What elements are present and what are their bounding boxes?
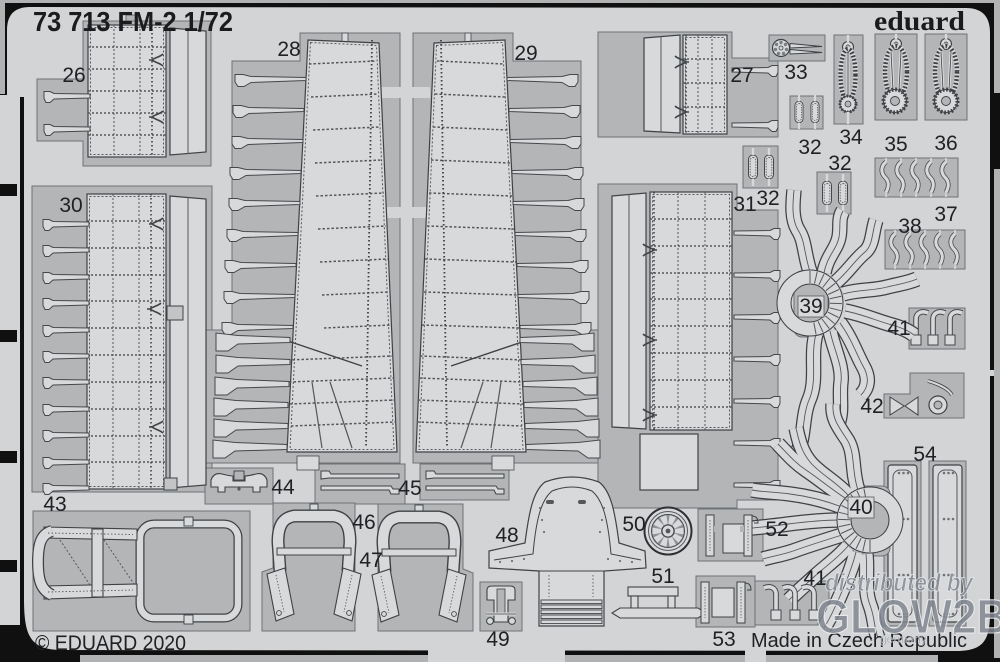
svg-text:34: 34 xyxy=(839,126,863,149)
svg-text:52: 52 xyxy=(765,518,788,541)
svg-text:germany: germany xyxy=(880,632,927,646)
svg-text:54: 54 xyxy=(913,443,937,466)
svg-text:27: 27 xyxy=(730,64,753,87)
svg-text:41: 41 xyxy=(887,317,910,340)
svg-text:53: 53 xyxy=(712,628,735,651)
svg-text:26: 26 xyxy=(62,64,85,87)
svg-text:36: 36 xyxy=(934,132,957,155)
svg-text:44: 44 xyxy=(271,476,295,499)
svg-text:30: 30 xyxy=(59,194,82,217)
svg-text:41: 41 xyxy=(803,567,826,590)
svg-text:37: 37 xyxy=(934,203,957,226)
svg-text:29: 29 xyxy=(514,42,537,65)
svg-text:38: 38 xyxy=(898,215,921,238)
svg-text:51: 51 xyxy=(651,565,674,588)
svg-text:© EDUARD 2020: © EDUARD 2020 xyxy=(35,632,186,655)
svg-text:28: 28 xyxy=(277,38,300,61)
svg-text:50: 50 xyxy=(622,513,645,536)
svg-text:46: 46 xyxy=(352,511,375,534)
svg-text:40: 40 xyxy=(849,496,872,519)
svg-text:39: 39 xyxy=(799,295,822,318)
svg-text:eduard: eduard xyxy=(874,6,965,36)
svg-text:32: 32 xyxy=(756,187,779,210)
svg-text:31: 31 xyxy=(733,193,756,216)
svg-text:35: 35 xyxy=(884,133,907,156)
svg-text:49: 49 xyxy=(486,628,509,651)
svg-text:43: 43 xyxy=(43,493,66,516)
svg-text:32: 32 xyxy=(798,136,821,159)
svg-text:47: 47 xyxy=(359,549,382,572)
svg-text:48: 48 xyxy=(495,524,518,547)
svg-text:33: 33 xyxy=(784,61,807,84)
svg-text:73 713 FM-2 1/72: 73 713 FM-2 1/72 xyxy=(33,6,233,37)
svg-text:42: 42 xyxy=(860,395,883,418)
svg-text:32: 32 xyxy=(828,152,851,175)
svg-text:45: 45 xyxy=(398,477,421,500)
